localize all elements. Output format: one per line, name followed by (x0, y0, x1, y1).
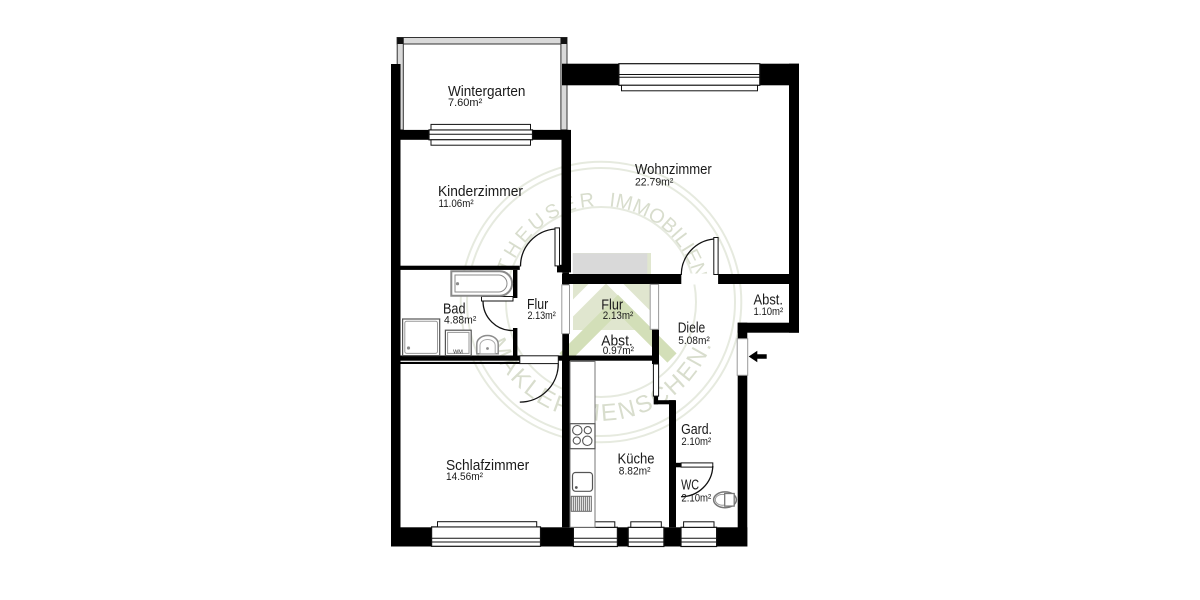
svg-text:Kinderzimmer: Kinderzimmer (438, 183, 523, 200)
svg-text:Küche: Küche (618, 449, 655, 466)
svg-text:Abst.: Abst. (754, 291, 783, 308)
svg-text:4.88m²: 4.88m² (444, 314, 477, 326)
svg-text:WC: WC (681, 476, 699, 493)
svg-text:5.08m²: 5.08m² (678, 334, 710, 346)
svg-text:8.82m²: 8.82m² (619, 465, 651, 477)
svg-text:1.10m²: 1.10m² (754, 306, 784, 318)
svg-text:14.56m²: 14.56m² (446, 471, 483, 484)
svg-text:22.79m²: 22.79m² (635, 176, 674, 188)
svg-text:11.06m²: 11.06m² (439, 199, 475, 211)
svg-text:2.10m²: 2.10m² (681, 493, 711, 505)
svg-text:Wohnzimmer: Wohnzimmer (635, 160, 712, 177)
svg-text:WM: WM (453, 350, 463, 356)
svg-text:Gard.: Gard. (681, 421, 712, 437)
svg-text:2.13m²: 2.13m² (528, 310, 557, 322)
svg-text:2.13m²: 2.13m² (603, 311, 634, 323)
svg-text:7.60m²: 7.60m² (448, 97, 483, 109)
svg-text:0.97m²: 0.97m² (603, 345, 635, 358)
svg-text:2.10m²: 2.10m² (681, 437, 711, 449)
svg-text:Diele: Diele (678, 319, 706, 336)
